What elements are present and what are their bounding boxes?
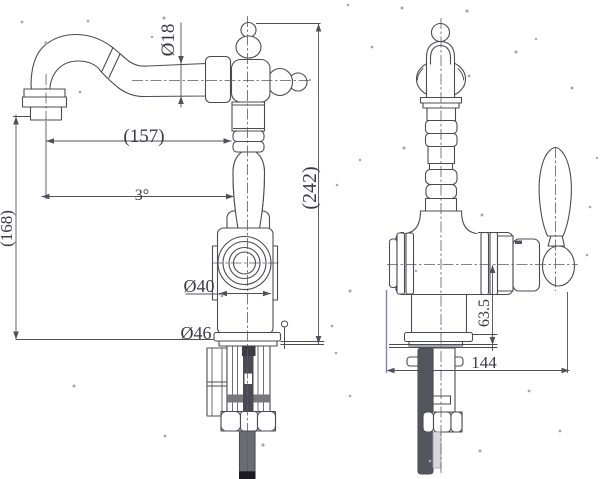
svg-text:Ø46: Ø46	[181, 323, 212, 343]
svg-text:(242): (242)	[299, 166, 321, 209]
svg-text:144: 144	[471, 353, 497, 372]
svg-text:(157): (157)	[123, 126, 164, 147]
svg-text:Ø18: Ø18	[158, 24, 179, 57]
svg-text:3°: 3°	[135, 187, 149, 204]
svg-text:Ø40: Ø40	[184, 276, 215, 296]
svg-text:(168): (168)	[0, 210, 16, 247]
svg-text:63.5: 63.5	[476, 299, 493, 327]
